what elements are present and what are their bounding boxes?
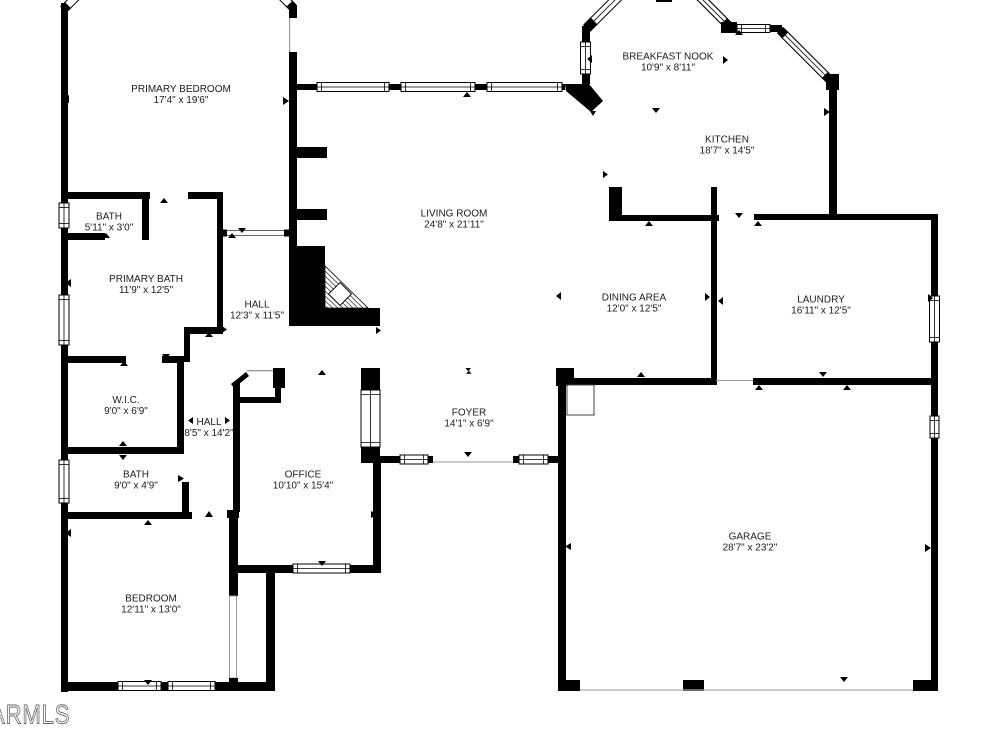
svg-text:HALL: HALL — [244, 300, 269, 311]
svg-text:17'4" x 19'6": 17'4" x 19'6" — [154, 95, 209, 106]
svg-text:LAUNDRY: LAUNDRY — [797, 295, 845, 306]
svg-text:OFFICE: OFFICE — [285, 470, 322, 481]
svg-text:9'0" x 6'9": 9'0" x 6'9" — [104, 406, 148, 417]
svg-text:ARMLS: ARMLS — [0, 701, 70, 731]
svg-text:16'11" x 12'5": 16'11" x 12'5" — [791, 306, 851, 317]
svg-text:12'0" x 12'5": 12'0" x 12'5" — [607, 304, 662, 315]
svg-text:10'10" x 15'4": 10'10" x 15'4" — [273, 481, 334, 492]
svg-text:PRIMARY BATH: PRIMARY BATH — [109, 274, 183, 285]
svg-text:PRIMARY BEDROOM: PRIMARY BEDROOM — [131, 84, 231, 95]
svg-text:14'1" x 6'9": 14'1" x 6'9" — [444, 419, 494, 430]
svg-text:GARAGE: GARAGE — [729, 532, 772, 543]
svg-text:12'11" x 13'0": 12'11" x 13'0" — [121, 605, 181, 616]
svg-text:8'5" x 14'2": 8'5" x 14'2" — [184, 428, 234, 439]
svg-text:DINING AREA: DINING AREA — [602, 293, 667, 304]
svg-text:W.I.C.: W.I.C. — [112, 395, 139, 406]
svg-text:KITCHEN: KITCHEN — [705, 135, 749, 146]
svg-text:BATH: BATH — [96, 212, 122, 223]
svg-text:10'9" x 8'11": 10'9" x 8'11" — [641, 63, 696, 74]
svg-text:12'3" x 11'5": 12'3" x 11'5" — [230, 311, 285, 322]
svg-text:LIVING ROOM: LIVING ROOM — [421, 209, 488, 220]
svg-text:BATH: BATH — [123, 470, 149, 481]
svg-text:24'8" x 21'11": 24'8" x 21'11" — [424, 220, 484, 231]
svg-text:HALL: HALL — [196, 417, 221, 428]
svg-text:9'0" x 4'9": 9'0" x 4'9" — [114, 481, 158, 492]
svg-text:BREAKFAST NOOK: BREAKFAST NOOK — [623, 52, 714, 63]
svg-text:28'7" x 23'2": 28'7" x 23'2" — [723, 543, 778, 554]
svg-text:FOYER: FOYER — [452, 408, 486, 419]
svg-text:BEDROOM: BEDROOM — [125, 594, 177, 605]
svg-text:11'9" x 12'5": 11'9" x 12'5" — [119, 285, 174, 296]
svg-text:18'7" x 14'5": 18'7" x 14'5" — [700, 146, 755, 157]
svg-text:5'11" x 3'0": 5'11" x 3'0" — [85, 223, 134, 234]
